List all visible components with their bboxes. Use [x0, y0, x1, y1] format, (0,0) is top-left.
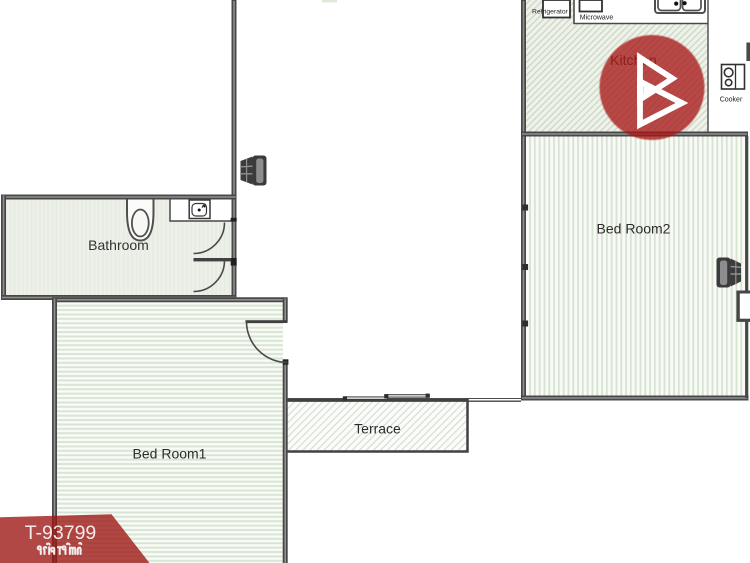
svg-text:Refrigerator: Refrigerator	[532, 9, 569, 16]
svg-text:Microwave: Microwave	[580, 15, 614, 22]
svg-text:Terrace: Terrace	[354, 421, 401, 437]
svg-text:Bathroom: Bathroom	[88, 237, 149, 253]
svg-text:Bed Room2: Bed Room2	[597, 221, 671, 237]
svg-text:Cooker: Cooker	[720, 97, 743, 104]
svg-text:Bed Room1: Bed Room1	[133, 446, 207, 462]
svg-text:T-93799: T-93799	[25, 522, 97, 544]
